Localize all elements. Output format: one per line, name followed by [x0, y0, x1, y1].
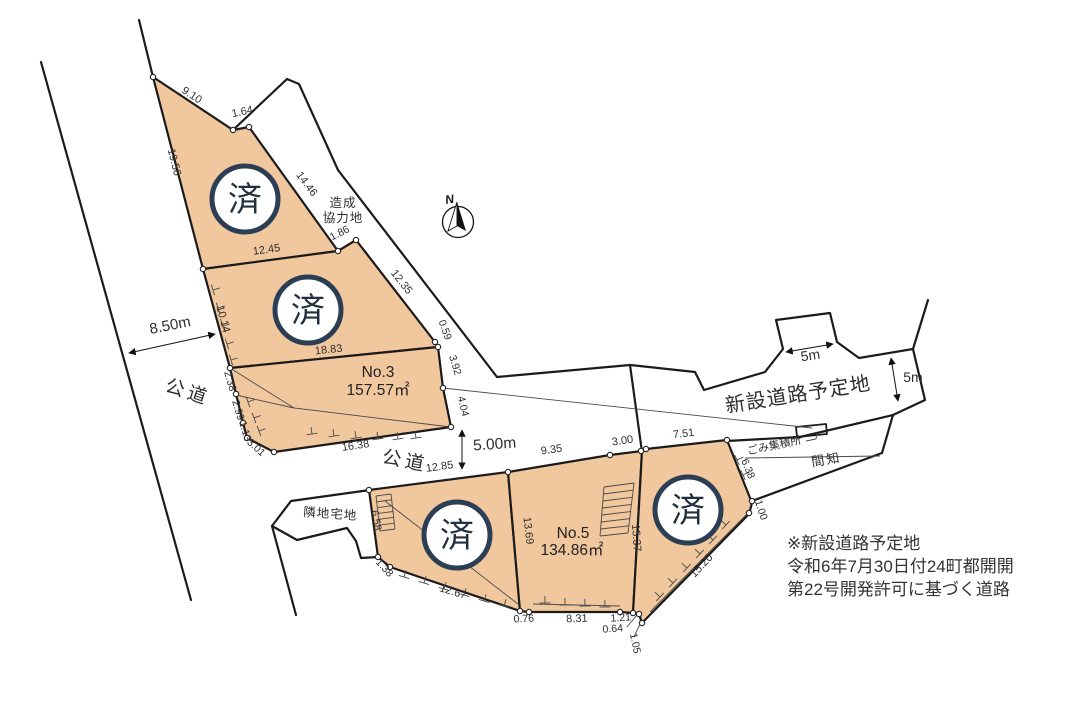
vertex-dot [432, 339, 437, 344]
land-plot-diagram: N 9.101.6419.5614.4612.451.86造成協力地12.350… [0, 0, 1072, 707]
dim-0-76: 0.76 [513, 612, 534, 625]
parcel-no5-name: No.5 [557, 525, 590, 542]
vertex-dot [505, 469, 510, 474]
dim-0-64: 0.64 [602, 622, 623, 635]
parcel-no3-area: 157.57㎡ [347, 381, 410, 399]
parcel-no3-name: No.3 [362, 364, 395, 381]
dim-8-31: 8.31 [566, 613, 588, 626]
road-mid-top-edge [497, 365, 630, 377]
parcel-no5-area: 134.86㎡ [541, 541, 604, 559]
dim-1-00: 1.00 [752, 499, 770, 522]
vertex-dot [230, 127, 235, 132]
dim-12-85: 12.85 [425, 459, 454, 475]
garbage-station-box [796, 424, 827, 437]
status-circle-3: 済 [424, 502, 490, 568]
dim-1-05: 1.05 [627, 632, 643, 655]
dim-3-92: 3.92 [446, 354, 463, 377]
vertex-dot [200, 266, 205, 271]
area-zosei-line1: 造成 [329, 196, 356, 210]
sold-status-label: 済 [440, 517, 474, 555]
vertex-dot [366, 487, 371, 492]
status-circle-2: 済 [275, 277, 341, 343]
neighbor-lot-boundary [272, 490, 378, 558]
dim-6-58: 6.58 [368, 509, 383, 531]
sold-status-label: 済 [671, 492, 705, 530]
vertex-dot [607, 452, 612, 457]
vertex-dot [435, 344, 440, 349]
planned-road-note: ※新設道路予定地 令和6年7月30日付24町都開開 第22号開発許可に基づく道路 [787, 534, 1014, 599]
vertex-dot [746, 510, 751, 515]
vertex-dot [643, 446, 648, 451]
note-line-3: 第22号開発許可に基づく道路 [787, 580, 1010, 599]
vertex-dot [639, 620, 644, 625]
dim-8-50m: 8.50m [148, 313, 192, 338]
dim-15-37: 15.37 [629, 524, 643, 552]
vertex-dot [246, 124, 251, 129]
vertex-dot [448, 424, 453, 429]
dim-4-04: 4.04 [455, 395, 471, 418]
dim-5-00m: 5.00m [473, 435, 517, 455]
north-label: N [444, 192, 455, 207]
vertex-dot [724, 437, 729, 442]
planned-road-outline [630, 313, 925, 441]
width-arrow-5m-right [891, 358, 898, 401]
road-left-label: 公道 [163, 375, 214, 410]
label-kenchi: 間知 [810, 450, 842, 470]
vertex-dot [335, 248, 340, 253]
dim-3-00: 3.00 [611, 434, 634, 449]
vertex-dot [353, 237, 358, 242]
dim-5m-right: 5m [903, 369, 922, 385]
road-left-east-edge-upper [139, 20, 153, 77]
vertex-dot [636, 611, 641, 616]
area-zosei-line2: 協力地 [323, 210, 364, 225]
dim-0-59: 0.59 [436, 318, 454, 341]
vertex-dot [233, 391, 238, 396]
vertex-dot [271, 449, 276, 454]
vertex-dot [440, 385, 445, 390]
dim-1-64: 1.64 [231, 104, 254, 120]
label-rinchi: 隣地宅地 [303, 504, 358, 523]
north-compass: N [443, 192, 474, 238]
width-arrow-8-50m [129, 334, 215, 353]
neighbor-lot-south-line [272, 526, 296, 615]
dim-16-38: 16.38 [341, 438, 370, 454]
status-circle-1: 済 [212, 166, 278, 232]
dim-7-51: 7.51 [672, 427, 695, 442]
dim-1-86: 1.86 [328, 223, 352, 243]
label-gomi: ごみ集積所 [746, 433, 803, 458]
dim-5m-top: 5m [800, 346, 821, 365]
plot-map-canvas: N 9.101.6419.5614.4612.451.86造成協力地12.350… [0, 0, 1072, 707]
note-line-1: ※新設道路予定地 [787, 534, 920, 553]
vertex-dot [630, 610, 635, 615]
sold-status-label: 済 [228, 181, 262, 219]
north-extension-line [913, 300, 928, 349]
note-line-2: 令和6年7月30日付24町都開開 [787, 557, 1014, 576]
status-circle-4: 済 [655, 477, 721, 543]
dim-9-35: 9.35 [540, 443, 563, 458]
vertex-dot [150, 74, 155, 79]
road-mid-label: 公道 [380, 446, 429, 476]
sold-status-label: 済 [291, 292, 325, 330]
